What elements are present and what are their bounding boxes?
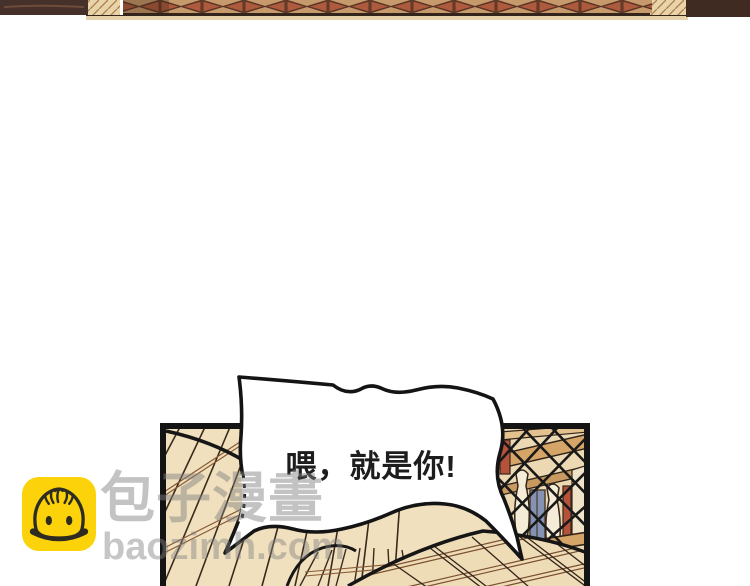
comic-artwork xyxy=(0,0,750,586)
speech-bubble-text: 喂，就是你! xyxy=(256,441,486,486)
top-strip-art xyxy=(0,0,750,20)
comic-page: 喂，就是你! 包子漫畫 baozimh.com xyxy=(0,0,750,586)
